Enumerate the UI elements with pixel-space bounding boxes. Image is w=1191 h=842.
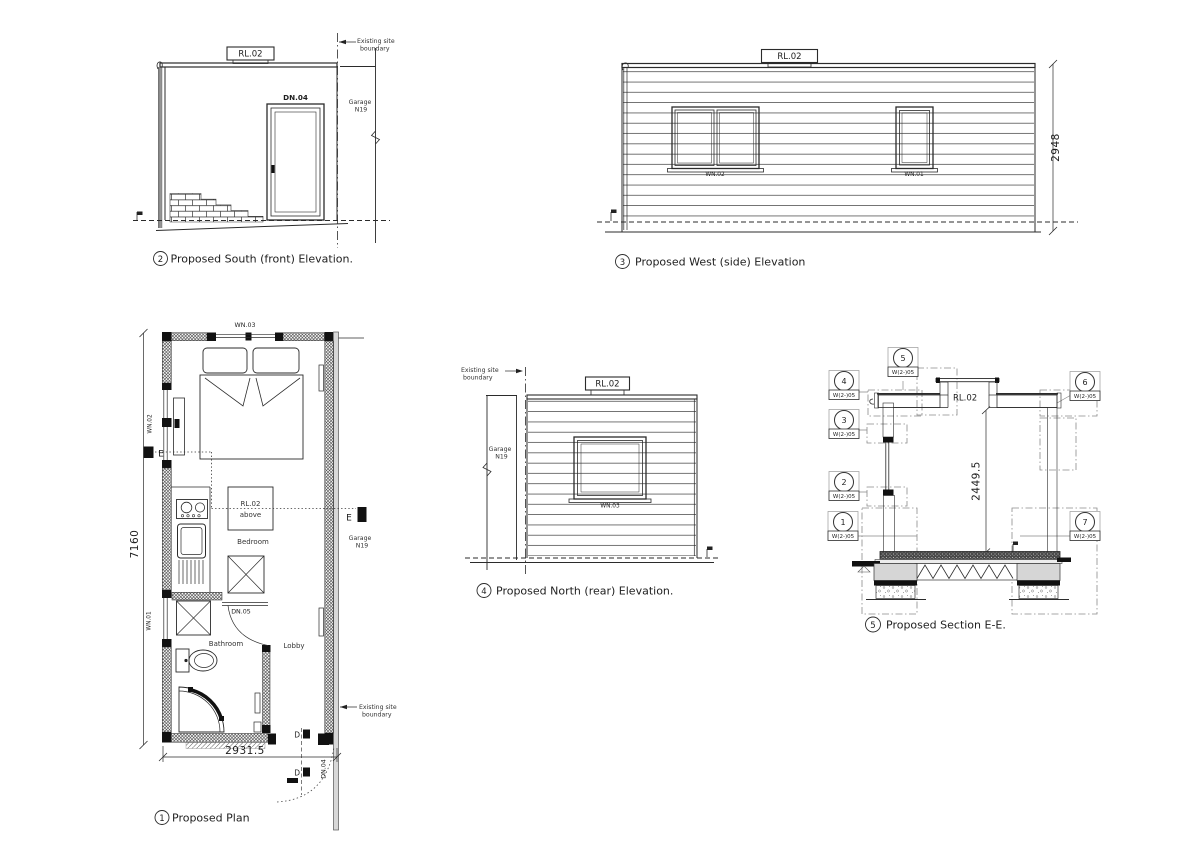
plan-boundary-label-1: Existing site [359,704,397,711]
section-marker-flag [144,447,154,459]
west-caption-text: Proposed West (side) Elevation [635,256,805,269]
pillow [203,348,247,373]
section-rooflight: RL.02 [936,378,999,408]
south-boundary-label-1: Existing site [357,38,395,45]
north-siding [528,399,696,556]
north-caption-text: Proposed North (rear) Elevation. [496,585,673,598]
plan-wall-fixture [319,365,324,391]
section-caption-number: 5 [870,621,875,631]
north-rooflight-label: RL.02 [595,380,619,390]
room-label-bathroom: Bathroom [209,640,244,648]
section-callout-1: 1 W(2-)05 [828,512,858,541]
plan-boundary-annotation: Existing site boundary [340,704,397,719]
plan-caption-text: Proposed Plan [172,812,250,825]
north-site-boundary: Existing site boundary [461,367,526,574]
section-callout-4: 4 W(2-)05 [829,371,859,400]
section-level-flag [1013,542,1018,553]
west-window-left-label: WN.02 [705,172,725,178]
proposed-plan-drawing: RL.02 above DN.05 [129,322,397,830]
west-height-dim-text: 2948 [1050,133,1062,162]
plan-window-top-label: WN.03 [235,322,256,329]
south-caption: 2 Proposed South (front) Elevation. [154,252,353,266]
section-callout-7: 7 W(2-)05 [1070,512,1100,541]
north-garage-label-1: Garage [489,446,512,453]
west-rooflight-label: RL.02 [777,52,801,62]
boundary-arrow-icon [340,705,347,709]
section-footing-right [1009,564,1069,600]
plan-garage-wall [334,332,365,830]
level-flag-icon [707,547,713,551]
section-callout-5: 5 W(2-)05 [888,348,918,377]
plan-garage-annotation: Garage N19 [349,535,372,550]
north-caption-number: 4 [481,587,486,597]
plan-towel-rail [255,693,260,713]
plan-garage-label-1: Garage [349,535,372,542]
callout-number: 2 [841,478,846,487]
callout-number: 1 [840,518,845,527]
north-garage-label-2: N19 [495,454,508,461]
section-callout-2: 2 W(2-)05 [829,472,859,501]
north-window-label: WN.03 [600,504,620,510]
south-caption-number: 2 [158,255,163,265]
plan-window-left-lower-label: WN.01 [147,611,153,631]
door-marker-flag [303,768,310,777]
callout-number: 4 [841,377,846,386]
west-siding [623,68,1034,222]
section-height-dimension: 2449.5 [971,407,991,557]
north-caption: 4 Proposed North (rear) Elevation. [477,584,673,598]
plan-rooflight-sub: above [240,511,261,519]
drainer [179,560,203,584]
section-drawing: RL.02 2449.5 [828,348,1100,633]
plan-toilet [176,649,217,672]
plan-rooflight-label: RL.02 [241,500,261,508]
section-marker-flag [358,507,367,522]
west-caption-number: 3 [620,258,625,268]
section-rooflight-label: RL.02 [953,394,977,404]
door-marker-d-bottom: D [294,769,300,778]
callout-ref: W(2-)05 [1074,534,1097,540]
north-building-outline [527,395,697,558]
south-site-boundary: Existing site boundary [338,33,395,248]
door-marker-flag [303,730,310,739]
section-callout-6: 6 W(2-)05 [1070,372,1100,401]
callout-ref: W(2-)05 [892,370,915,376]
south-garage-label-2: N19 [355,107,368,114]
plan-dim-height: 7160 [129,329,148,749]
drawing-canvas: RL.02 DN.04 Existing site boundary Garag… [0,0,1191,842]
plan-radiator-valve [175,419,180,428]
plan-dim-width-text: 2931.5 [225,745,265,757]
south-door-label: DN.04 [283,93,308,102]
section-caption: 5 Proposed Section E-E. [866,617,1006,632]
west-height-dimension: 2948 [1049,60,1062,235]
plan-boundary-label-2: boundary [362,712,392,719]
section-callout-3: 3 W(2-)05 [829,410,859,439]
callout-number: 3 [841,416,846,425]
section-marker-e-left: E [158,450,164,460]
callout-ref: W(2-)05 [833,494,856,500]
plan-garage-label-2: N19 [356,543,369,550]
boundary-arrow-icon [516,369,523,373]
south-brickwork [170,194,263,223]
north-boundary-label-2: boundary [463,375,493,382]
west-elevation-drawing: RL.02 WN.02 WN.01 2948 3 Proposed West (… [597,50,1078,269]
north-rooflight: RL.02 [586,377,630,395]
callout-ref: W(2-)05 [833,393,856,399]
plan-shower [179,687,224,732]
plan-shelf [254,722,261,732]
callout-number: 5 [900,354,905,363]
west-window-right-label: WN.01 [904,172,924,178]
south-rooflight-label: RL.02 [238,50,262,60]
west-caption: 3 Proposed West (side) Elevation [616,255,806,269]
callout-number: 7 [1082,518,1087,527]
gutter-hook-icon [870,399,874,404]
sink [178,524,206,558]
door-marker-d-top: D [294,731,300,740]
south-garage-label-1: Garage [349,99,372,106]
section-caption-text: Proposed Section E-E. [886,619,1006,632]
south-elevation-drawing: RL.02 DN.04 Existing site boundary Garag… [133,33,395,266]
south-boundary-label-2: boundary [360,46,390,53]
south-rooflight: RL.02 [227,47,274,64]
plan-bed [200,348,303,459]
level-flag-icon [137,212,143,216]
callout-ref: W(2-)05 [833,432,856,438]
plan-door-bath-label: DN.05 [231,609,251,616]
room-label-bedroom: Bedroom [237,538,269,546]
south-garage-wall: Garage N19 [340,48,380,243]
plan-wall-fixture [319,608,324,636]
plan-caption-number: 1 [159,814,164,824]
plan-dim-height-text: 7160 [129,530,141,559]
north-boundary-label-1: Existing site [461,367,499,374]
callout-ref: W(2-)05 [832,534,855,540]
room-label-lobby: Lobby [283,642,304,650]
section-marker-e-right: E [346,514,352,524]
plan-kitchen [171,487,210,592]
architectural-drawing-sheet: RL.02 DN.04 Existing site boundary Garag… [0,0,1191,842]
door-glazing [275,112,316,212]
section-height-dim-text: 2449.5 [971,461,983,501]
north-garage-wall: Garage N19 [483,396,517,571]
callout-number: 6 [1082,378,1087,387]
north-elevation-drawing: Existing site boundary Garage N19 RL.02 … [461,367,720,598]
callout-connectors [858,381,1071,536]
door-handle-icon [272,165,275,173]
level-flag-icon [1013,542,1018,546]
south-caption-text: Proposed South (front) Elevation. [171,253,353,266]
west-rooflight: RL.02 [762,50,818,68]
pillow [253,348,299,373]
plan-caption: 1 Proposed Plan [155,811,250,825]
callout-ref: W(2-)05 [1074,394,1097,400]
plan-door-entry-label: DN.04 [321,759,328,779]
west-building-outline [622,63,1035,232]
plan-window-left-upper-label: WN.02 [148,414,154,434]
boundary-arrow-icon [339,40,346,44]
south-entry-door: DN.04 [267,93,324,220]
level-flag-icon [611,210,617,214]
